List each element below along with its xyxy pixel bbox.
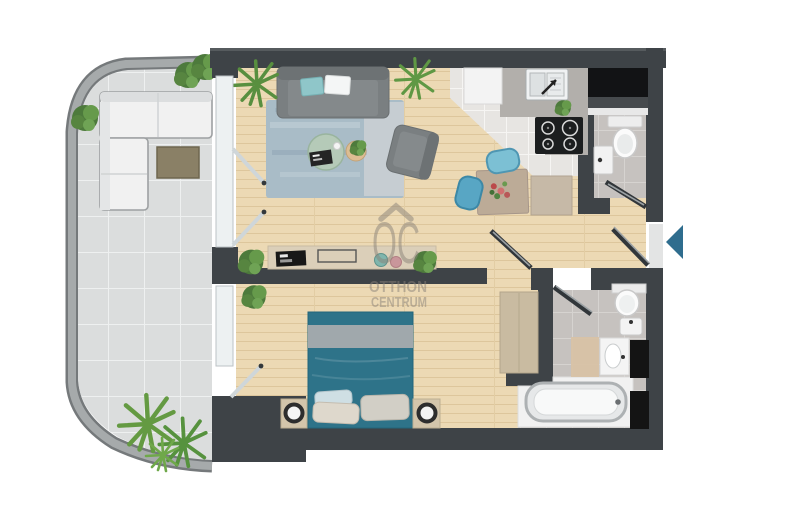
wc-sink (594, 146, 613, 174)
floor-plan-image: OC OTTHON CENTRUM (0, 0, 800, 512)
watermark-line1: OTTHON (369, 279, 427, 296)
watermark: OC OTTHON CENTRUM (369, 206, 427, 311)
entry-closet (588, 68, 648, 115)
entrance-arrow-icon (666, 225, 683, 259)
closet-shelf (588, 108, 648, 115)
side-table (346, 140, 366, 161)
wall-top-highlight (210, 48, 666, 51)
terrace (71, 54, 219, 471)
dining-table (476, 169, 529, 215)
watermark-logo: OC (372, 211, 420, 276)
watermark-line2: CENTRUM (371, 295, 427, 311)
bath-mat (571, 337, 599, 377)
corner-sink (620, 318, 642, 335)
washer-column (630, 340, 649, 378)
glass-wall (216, 76, 233, 247)
wall-bedroom-right (538, 284, 553, 386)
wall-wc-bottom (594, 198, 610, 214)
wall-right-upper (646, 48, 663, 222)
table-lamp (419, 405, 436, 422)
nightstand (281, 399, 307, 428)
wall-terrace-pillar (212, 247, 238, 268)
kitchen-sink (526, 69, 568, 100)
nightstand (413, 399, 440, 428)
bed (308, 312, 413, 428)
wall-bottom (306, 428, 663, 450)
outdoor-coffee-table (157, 147, 199, 178)
entrance-threshold (649, 224, 663, 268)
vanity-sink (600, 338, 629, 375)
table-lamp (286, 405, 303, 422)
closet-rail (588, 97, 648, 108)
refrigerator (464, 68, 502, 104)
sofa (277, 67, 389, 118)
glass-wall (216, 286, 233, 366)
washer-column (630, 391, 649, 429)
wardrobe (500, 292, 538, 373)
closet-black (588, 68, 648, 97)
floor-plan-page: OC OTTHON CENTRUM (0, 0, 800, 512)
coffee-table (308, 134, 344, 170)
cooktop (535, 117, 583, 154)
bathtub (526, 383, 626, 421)
kitchen-island (531, 176, 572, 215)
